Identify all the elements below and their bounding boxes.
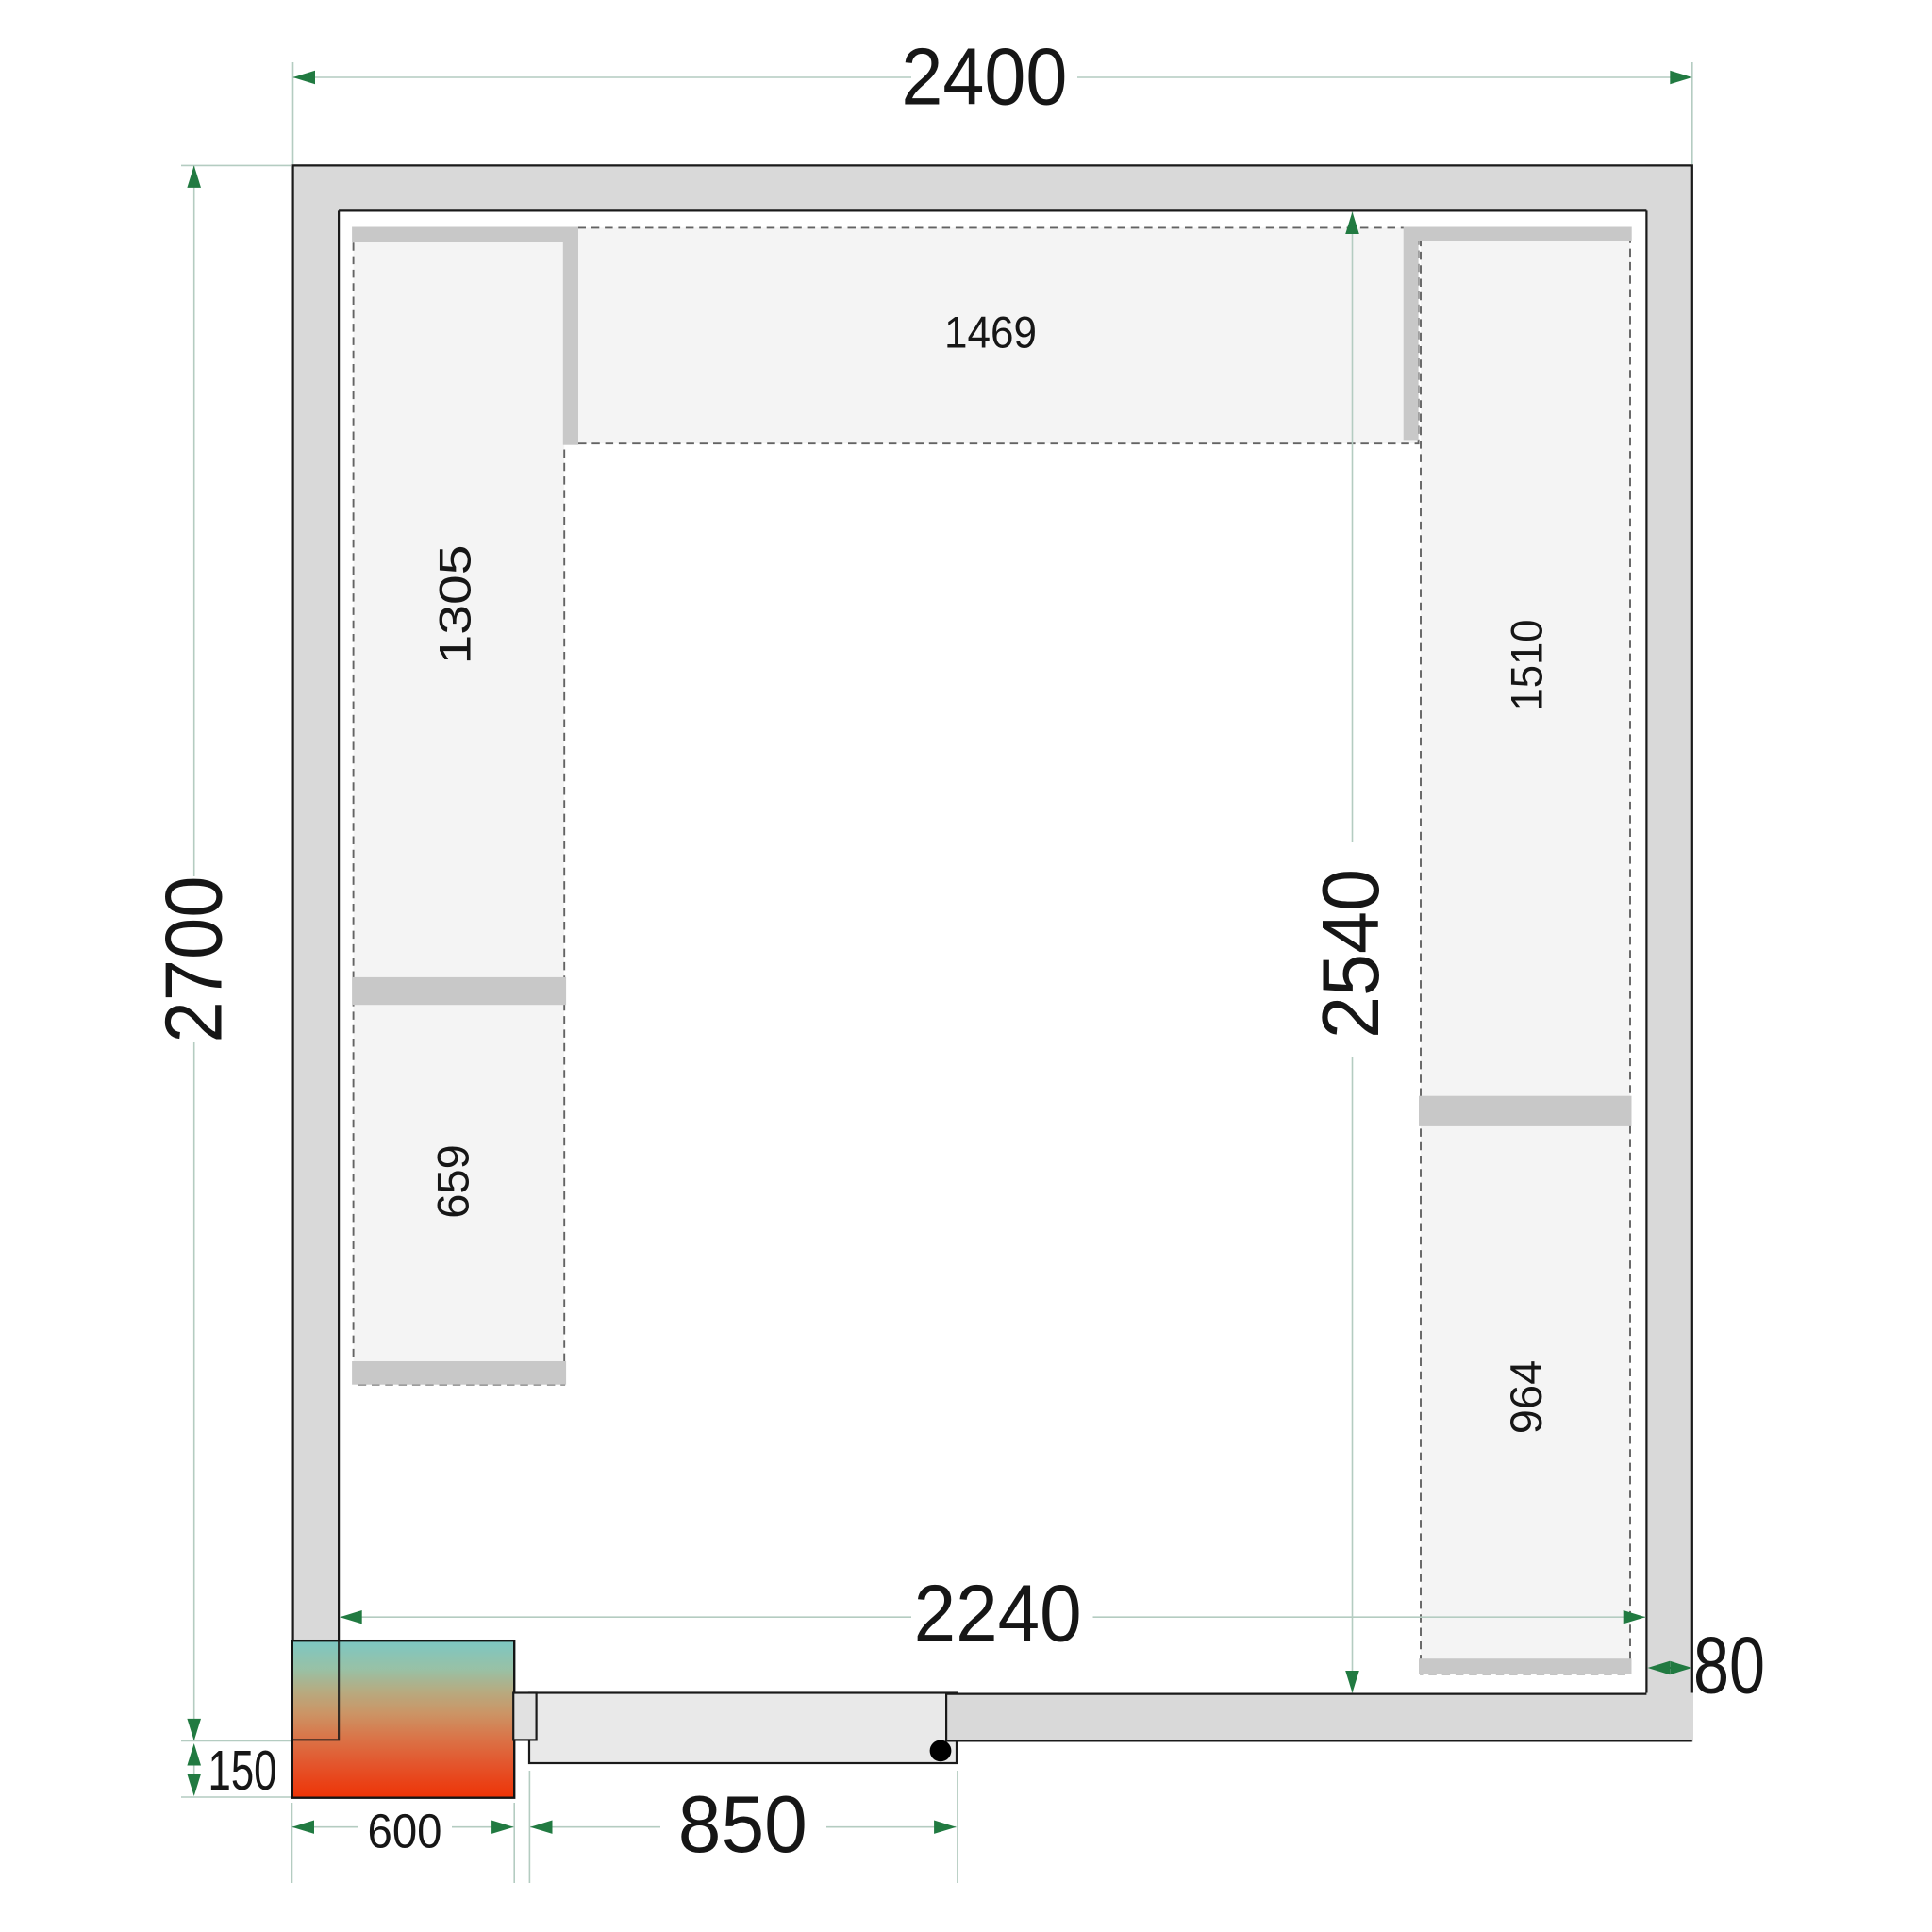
svg-text:80: 80	[1693, 1622, 1765, 1711]
svg-text:2700: 2700	[150, 876, 240, 1043]
svg-text:1469: 1469	[944, 308, 1037, 358]
svg-text:1510: 1510	[1501, 620, 1551, 711]
svg-text:1305: 1305	[430, 545, 480, 665]
svg-text:2400: 2400	[901, 33, 1067, 123]
svg-text:964: 964	[1501, 1360, 1551, 1435]
svg-text:2240: 2240	[914, 1570, 1082, 1659]
svg-text:659: 659	[428, 1144, 478, 1219]
svg-text:600: 600	[368, 1805, 442, 1858]
svg-text:150: 150	[208, 1740, 277, 1802]
svg-text:850: 850	[678, 1780, 808, 1870]
svg-text:2540: 2540	[1307, 869, 1396, 1039]
